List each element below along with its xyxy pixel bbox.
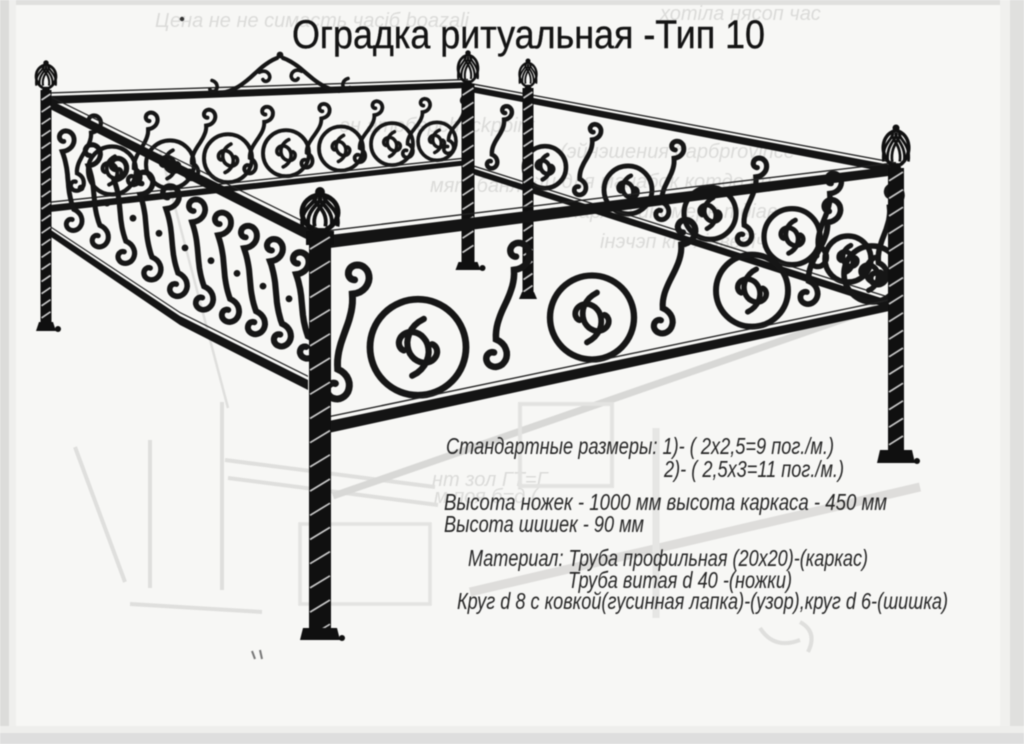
svg-text:Оградка ритуальная -Тип 10: Оградка ритуальная -Тип 10: [292, 13, 765, 57]
svg-text:2)- ( 2,5х3=11 пог./м.): 2)- ( 2,5х3=11 пог./м.): [663, 456, 844, 482]
svg-text:Круг d 8 с ковкой(гусинная лап: Круг d 8 с ковкой(гусинная лапка)-(узор)…: [457, 588, 948, 614]
svg-text:Высота шишек - 90 мм: Высота шишек - 90 мм: [444, 511, 644, 537]
